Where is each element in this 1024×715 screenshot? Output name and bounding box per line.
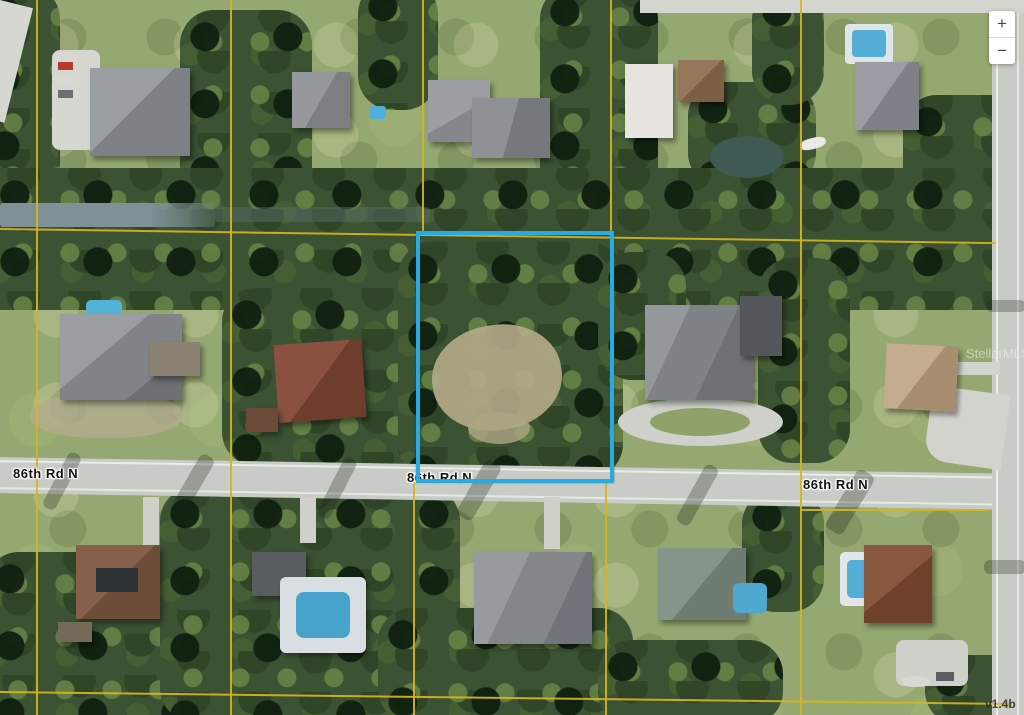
pond	[710, 136, 784, 178]
car	[58, 76, 73, 84]
house-roof	[645, 305, 753, 400]
canal-water	[0, 203, 215, 227]
house-roof	[472, 98, 550, 158]
road-top-lane	[640, 0, 1024, 13]
zoom-control: + −	[989, 11, 1015, 64]
version-tag: v1.4b	[985, 697, 1016, 711]
house-roof	[273, 339, 366, 423]
house-roof	[883, 343, 958, 412]
car	[58, 90, 73, 98]
boat-trailer	[902, 676, 930, 687]
car	[936, 672, 954, 681]
driveway	[300, 497, 316, 543]
zoom-in-button[interactable]: +	[989, 11, 1015, 38]
shed-roof	[150, 342, 200, 376]
parcel-line-vertical	[230, 0, 232, 715]
house-roof	[864, 545, 932, 623]
parcel-line-vertical	[36, 0, 38, 715]
shed-roof	[246, 408, 278, 432]
parcel-line-vertical	[800, 0, 802, 715]
parcel-line-vertical	[610, 0, 612, 233]
stellar-mls-watermark: StellarMLS	[966, 346, 1024, 361]
driveway	[544, 497, 560, 549]
lawn-island	[650, 408, 750, 436]
house-roof	[90, 68, 190, 156]
parcel-line-vertical	[422, 0, 424, 233]
pool	[852, 30, 886, 57]
house-roof	[855, 62, 919, 130]
car	[58, 62, 73, 70]
house-roof	[678, 60, 724, 102]
tree-cluster	[752, 0, 824, 105]
shed-roof	[58, 622, 92, 642]
driveway	[143, 497, 159, 547]
canal-water	[215, 207, 430, 222]
barn-roof	[625, 64, 673, 138]
pool	[296, 592, 350, 638]
parcel-line-vertical	[605, 480, 607, 715]
tree-shadow	[984, 560, 1024, 574]
road-label-86th-rd-n-left: 86th Rd N	[13, 466, 78, 481]
subject-parcel-boundary	[416, 231, 614, 483]
garage-roof	[740, 296, 782, 356]
pool	[733, 583, 767, 613]
tree-cluster	[598, 640, 783, 715]
solar-panels	[96, 568, 138, 592]
pool	[370, 106, 386, 119]
zoom-out-button[interactable]: −	[989, 38, 1015, 64]
house-roof	[474, 552, 592, 644]
parcel-line-vertical	[413, 478, 415, 715]
parcel-line-horizontal	[800, 509, 990, 511]
tree-shadow	[986, 300, 1024, 312]
road-label-86th-rd-n-right: 86th Rd N	[803, 477, 868, 492]
tree-cluster	[358, 0, 438, 110]
house-roof	[292, 72, 350, 128]
map-canvas[interactable]: 86th Rd N 86th Rd N 86th Rd N StellarMLS…	[0, 0, 1024, 715]
